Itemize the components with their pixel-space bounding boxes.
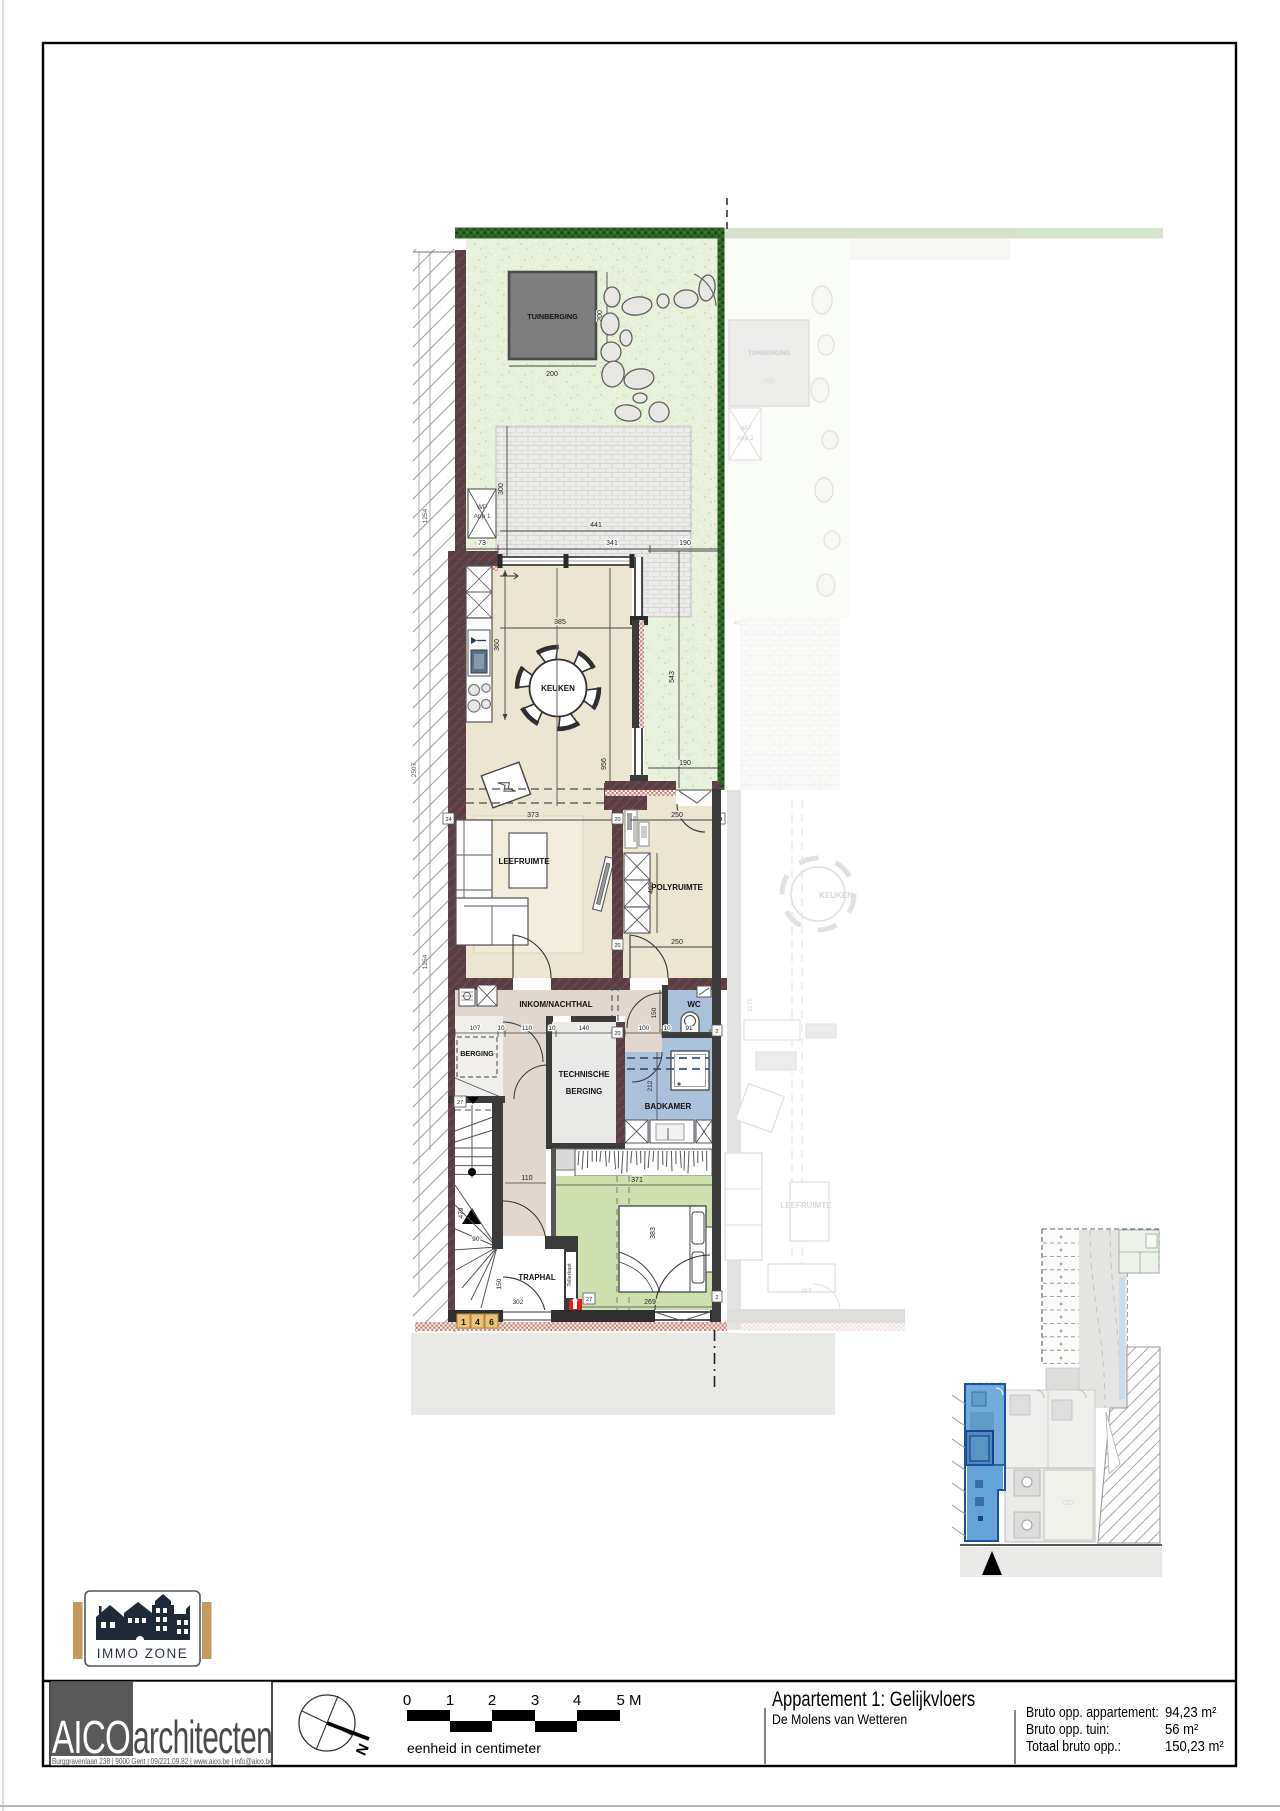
svg-text:24: 24 — [445, 817, 451, 823]
svg-text:BERGING: BERGING — [460, 1049, 494, 1058]
svg-text:90°: 90° — [472, 1235, 482, 1243]
svg-text:TUINBERGING: TUINBERGING — [527, 312, 578, 321]
svg-text:107: 107 — [470, 1025, 481, 1032]
svg-text:WC: WC — [687, 1000, 701, 1009]
svg-text:200: 200 — [546, 371, 558, 378]
svg-text:250: 250 — [671, 812, 683, 819]
svg-text:479: 479 — [458, 1207, 465, 1218]
svg-text:2507: 2507 — [411, 762, 418, 777]
svg-text:IMMO ZONE: IMMO ZONE — [97, 1646, 189, 1661]
svg-text:1179: 1179 — [747, 998, 754, 1012]
svg-text:Bruto opp. appartement:: Bruto opp. appartement: — [1026, 1704, 1159, 1720]
svg-text:110: 110 — [521, 1175, 532, 1182]
svg-text:150: 150 — [496, 1278, 503, 1289]
svg-text:1254: 1254 — [422, 954, 429, 969]
svg-text:INKOM/NACHTHAL: INKOM/NACHTHAL — [519, 1000, 592, 1009]
svg-text:Bruto opp. tuin:: Bruto opp. tuin: — [1026, 1721, 1109, 1737]
svg-text:250: 250 — [671, 939, 683, 946]
svg-text:2: 2 — [715, 1295, 718, 1301]
svg-text:2: 2 — [715, 1029, 718, 1035]
svg-text:1: 1 — [461, 1317, 466, 1327]
svg-text:212: 212 — [647, 1080, 654, 1091]
svg-text:5 M: 5 M — [616, 1692, 641, 1709]
svg-text:373: 373 — [527, 812, 539, 819]
svg-text:Totaal bruto opp.:: Totaal bruto opp.: — [1026, 1738, 1121, 1754]
svg-text:40: 40 — [734, 621, 741, 627]
svg-text:BERGING: BERGING — [566, 1087, 602, 1096]
svg-text:Burggravenlaan 238 | 9000 Gent: Burggravenlaan 238 | 9000 Gent | 09/221.… — [52, 1756, 273, 1766]
svg-text:94,23 m²: 94,23 m² — [1165, 1704, 1217, 1720]
svg-text:2: 2 — [488, 1692, 496, 1709]
svg-text:Tellerkast: Tellerkast — [567, 1263, 573, 1287]
svg-text:73: 73 — [478, 540, 486, 547]
svg-text:eenheid in centimeter: eenheid in centimeter — [407, 1740, 541, 1756]
svg-text:140: 140 — [579, 1025, 590, 1032]
svg-text:403: 403 — [648, 882, 655, 894]
svg-text:0: 0 — [403, 1692, 411, 1709]
svg-text:6: 6 — [489, 1317, 494, 1327]
svg-text:371: 371 — [631, 1177, 643, 1184]
svg-text:956: 956 — [601, 758, 608, 770]
svg-text:20: 20 — [614, 1031, 620, 1037]
svg-text:3: 3 — [531, 1692, 539, 1709]
svg-text:KEUKEN: KEUKEN — [819, 891, 853, 900]
svg-text:110: 110 — [522, 1025, 533, 1032]
svg-text:De Molens van Wetteren: De Molens van Wetteren — [772, 1711, 907, 1727]
svg-text:387: 387 — [801, 1288, 812, 1295]
svg-text:10: 10 — [663, 1025, 671, 1032]
svg-text:200: 200 — [764, 379, 775, 385]
svg-text:1: 1 — [446, 1692, 454, 1709]
svg-text:TECHNISCHE: TECHNISCHE — [559, 1070, 610, 1079]
svg-text:WP: WP — [477, 504, 487, 511]
svg-text:TUINBERGING: TUINBERGING — [748, 351, 790, 357]
svg-text:1254: 1254 — [422, 508, 429, 523]
svg-text:341: 341 — [606, 540, 618, 547]
svg-text:POLYRUIMTE: POLYRUIMTE — [651, 883, 703, 892]
svg-text:4: 4 — [573, 1692, 581, 1709]
svg-text:TRAPHAL: TRAPHAL — [518, 1273, 555, 1282]
svg-text:10: 10 — [548, 1025, 556, 1032]
svg-text:LEEFRUIMTE: LEEFRUIMTE — [780, 1201, 832, 1210]
svg-text:360: 360 — [494, 639, 501, 651]
svg-text:100: 100 — [639, 1025, 650, 1032]
svg-text:App 1: App 1 — [474, 513, 491, 520]
svg-text:20: 20 — [614, 943, 620, 949]
svg-text:10: 10 — [497, 1025, 505, 1032]
svg-text:WP: WP — [740, 425, 750, 432]
svg-text:91: 91 — [685, 1025, 693, 1032]
svg-text:LEEFRUIMTE: LEEFRUIMTE — [498, 857, 550, 866]
svg-text:150: 150 — [651, 1007, 658, 1018]
svg-text:BADKAMER: BADKAMER — [645, 1102, 692, 1111]
svg-text:385: 385 — [554, 619, 566, 626]
svg-text:269: 269 — [644, 1299, 656, 1306]
svg-text:543: 543 — [669, 671, 676, 683]
svg-text:Appartement 1: Gelijkvloers: Appartement 1: Gelijkvloers — [772, 1688, 975, 1712]
svg-text:KEUKEN: KEUKEN — [541, 684, 575, 693]
svg-text:302: 302 — [513, 1299, 524, 1306]
svg-text:□□: □□ — [1064, 1500, 1073, 1507]
svg-text:27: 27 — [586, 1297, 592, 1303]
svg-text:56 m²: 56 m² — [1165, 1721, 1199, 1737]
svg-text:300: 300 — [498, 483, 505, 495]
svg-text:App 2: App 2 — [737, 435, 754, 442]
svg-text:441: 441 — [590, 522, 602, 529]
svg-text:20: 20 — [614, 817, 620, 823]
svg-text:383: 383 — [650, 1227, 657, 1239]
svg-text:190: 190 — [679, 760, 691, 767]
svg-text:150,23 m²: 150,23 m² — [1165, 1738, 1224, 1754]
svg-text:4: 4 — [475, 1317, 480, 1327]
svg-text:190: 190 — [679, 540, 691, 547]
svg-text:27: 27 — [457, 1100, 463, 1106]
